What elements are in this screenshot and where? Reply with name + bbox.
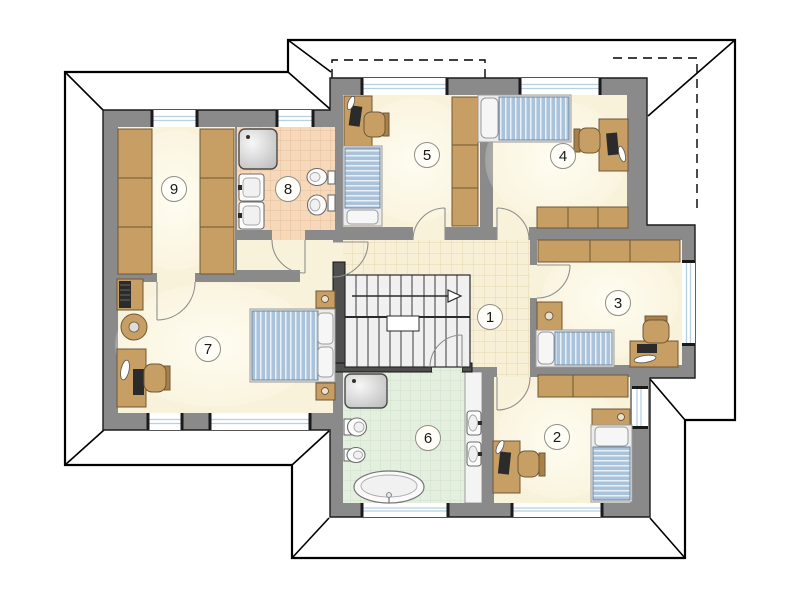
floor-plan-drawing — [0, 0, 800, 600]
room-label-2: 2 — [544, 424, 570, 450]
window-bedroom3 — [682, 260, 695, 346]
door-gap — [497, 227, 529, 240]
toilet — [344, 418, 367, 436]
window-bedroom5 — [361, 78, 449, 95]
door-gap — [157, 273, 195, 282]
window-bath6 — [361, 503, 450, 517]
laptop-icon — [606, 133, 619, 156]
window-bedroom4 — [519, 78, 602, 95]
shelf — [592, 409, 630, 426]
window-bedroom2-side — [632, 386, 648, 429]
staircase — [333, 262, 472, 372]
wardrobe — [118, 129, 152, 274]
office-chair — [364, 112, 389, 137]
door-gap — [530, 265, 537, 298]
round-chair — [121, 314, 147, 340]
window-bedroom7-b — [209, 413, 312, 430]
wardrobe — [452, 97, 478, 226]
nightstand — [537, 302, 562, 330]
room-label-4: 4 — [550, 143, 576, 169]
bathtub — [354, 471, 424, 503]
room-label-8: 8 — [275, 176, 301, 202]
corridor-floor — [237, 240, 333, 270]
office-chair — [574, 128, 600, 153]
bidet — [307, 169, 335, 186]
door-gap — [272, 230, 305, 240]
door-gap — [497, 367, 530, 377]
wardrobe — [200, 129, 234, 274]
room-label-9: 9 — [161, 176, 187, 202]
room-label-1: 1 — [477, 304, 503, 330]
wardrobe — [538, 240, 680, 262]
wardrobe — [538, 375, 628, 397]
room-label-5: 5 — [414, 142, 440, 168]
tv-cabinet — [117, 279, 143, 310]
floor-plan-stage: 1 2 3 4 5 6 7 8 9 — [0, 0, 800, 600]
window-bath8 — [276, 110, 315, 127]
laptop-icon — [498, 452, 511, 475]
room-label-3: 3 — [605, 290, 631, 316]
window-bedroom2-bottom — [511, 503, 604, 517]
room-label-7: 7 — [195, 336, 221, 362]
room-label-6: 6 — [415, 425, 441, 451]
window-bedroom7-a — [147, 413, 184, 430]
office-chair — [518, 451, 545, 477]
bidet — [344, 448, 365, 463]
nightstand — [316, 291, 335, 308]
door-gap — [413, 227, 445, 240]
laptop-icon — [637, 344, 657, 353]
shower — [345, 374, 387, 408]
window-closet9 — [151, 110, 199, 127]
bathroom-6-counter — [465, 372, 482, 503]
shower — [239, 129, 277, 169]
wardrobe — [537, 207, 628, 228]
office-chair — [144, 364, 170, 392]
laptop-icon — [133, 369, 144, 395]
stair-void — [387, 316, 419, 331]
nightstand — [316, 383, 335, 400]
office-chair — [643, 316, 669, 343]
